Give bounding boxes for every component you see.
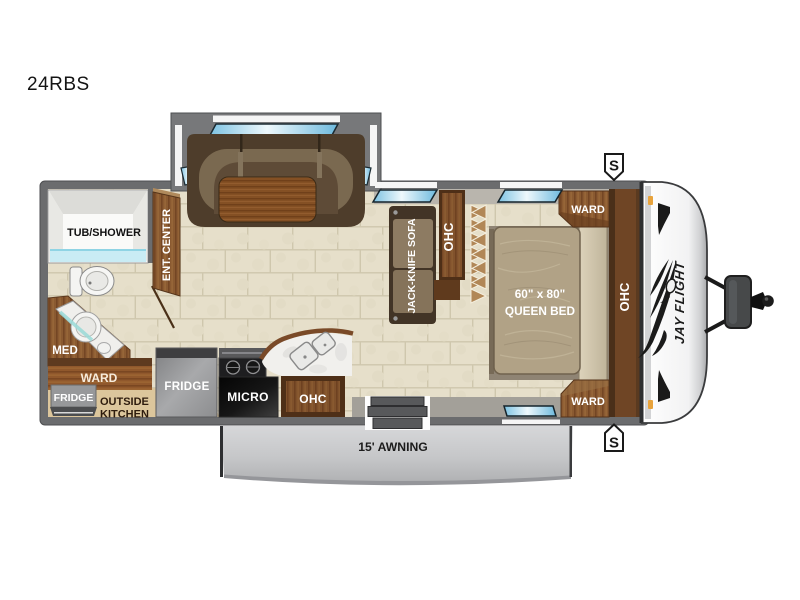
svg-text:S: S (609, 435, 619, 452)
svg-text:TUB/SHOWER: TUB/SHOWER (67, 227, 141, 239)
svg-text:OHC: OHC (441, 222, 456, 252)
svg-text:MED: MED (52, 345, 78, 357)
svg-text:FRIDGE: FRIDGE (54, 392, 94, 404)
svg-text:OHC: OHC (299, 392, 327, 406)
svg-text:WARD: WARD (571, 396, 605, 408)
svg-text:KITCHEN: KITCHEN (100, 409, 149, 421)
svg-text:WARD: WARD (81, 371, 118, 385)
svg-text:MICRO: MICRO (227, 390, 269, 404)
svg-text:OHC: OHC (617, 282, 632, 312)
svg-text:QUEEN BED: QUEEN BED (505, 304, 576, 318)
svg-text:15' AWNING: 15' AWNING (358, 440, 428, 454)
svg-text:WARD: WARD (571, 204, 605, 216)
svg-text:JACK-KNIFE SOFA: JACK-KNIFE SOFA (406, 218, 418, 314)
svg-text:S: S (609, 158, 619, 175)
svg-text:ENT. CENTER: ENT. CENTER (161, 209, 173, 281)
svg-text:60" x 80": 60" x 80" (515, 287, 566, 301)
svg-text:24RBS: 24RBS (27, 74, 90, 95)
svg-text:OUTSIDE: OUTSIDE (100, 396, 149, 408)
svg-text:FRIDGE: FRIDGE (164, 381, 209, 393)
